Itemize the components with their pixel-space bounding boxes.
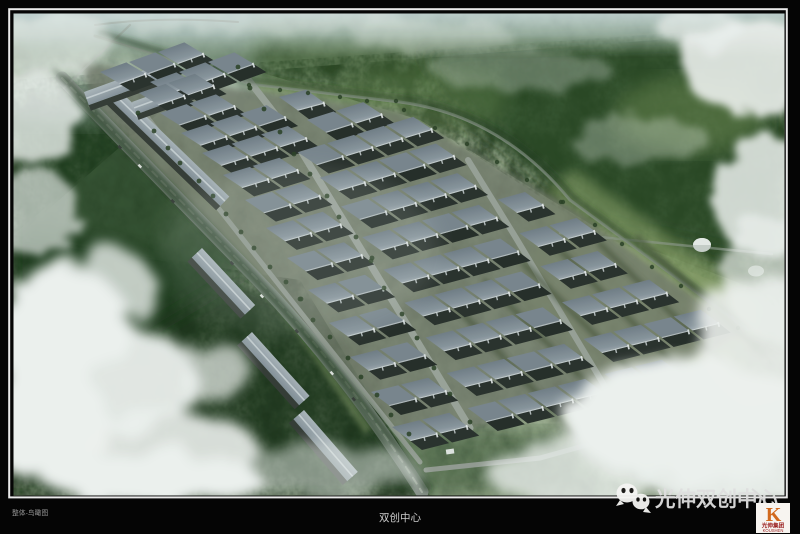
svg-text:KOUSHEN: KOUSHEN — [763, 528, 784, 533]
svg-text:双创中心: 双创中心 — [379, 511, 421, 524]
svg-text:整体-鸟瞰图: 整体-鸟瞰图 — [12, 508, 48, 517]
